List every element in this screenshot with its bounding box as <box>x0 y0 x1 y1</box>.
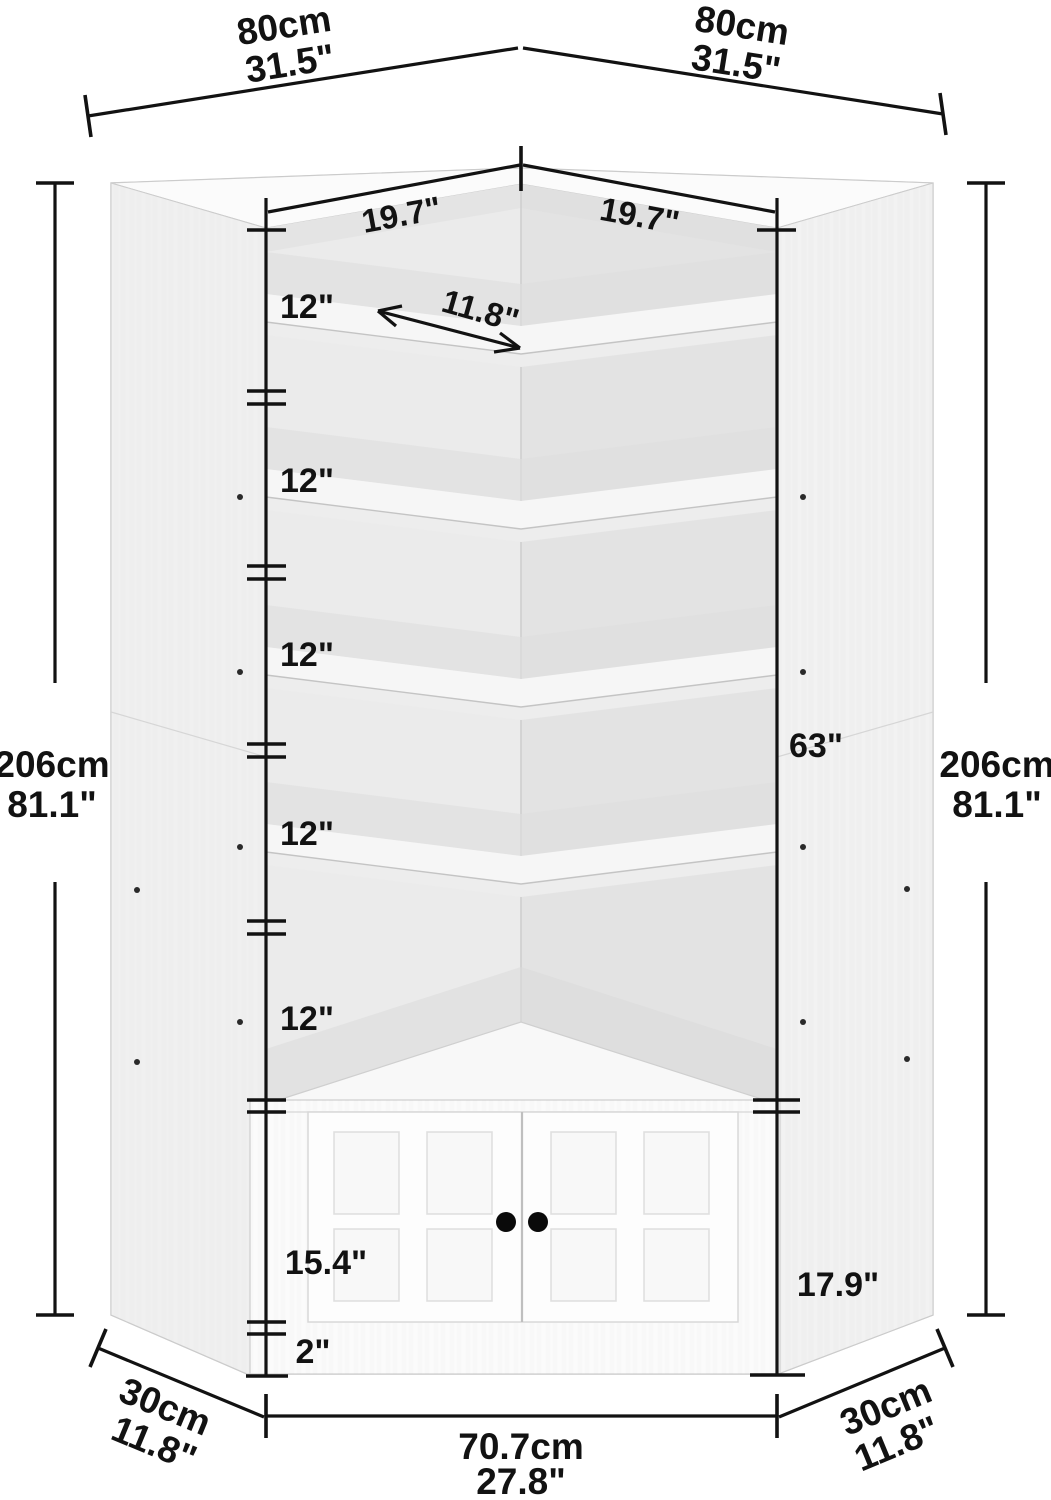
compartment-height-1: 12" <box>280 288 334 326</box>
height-right-cm: 206cm <box>939 744 1051 785</box>
height-left-cm: 206cm <box>0 744 110 785</box>
compartment-height-3: 12" <box>280 636 334 674</box>
cabinet-structure <box>111 168 933 1374</box>
door-panel <box>427 1229 492 1301</box>
compartment-height-4: 12" <box>280 815 334 853</box>
door-panel <box>644 1132 709 1214</box>
corner-cabinet-diagram: 80cm 31.5" 80cm 31.5" 19.7" 19.7" 11.8" … <box>0 0 1051 1500</box>
door-panel <box>644 1229 709 1301</box>
base-height-label: 2" <box>295 1333 330 1371</box>
door-panel <box>334 1132 399 1214</box>
right-door-knob <box>528 1212 548 1232</box>
left-door-knob <box>496 1212 516 1232</box>
compartment-height-5: 12" <box>280 1000 334 1038</box>
door-panel <box>427 1132 492 1214</box>
right-panel-grain <box>777 183 933 1374</box>
cabinet-section-height-label: 17.9" <box>797 1266 879 1304</box>
open-shelf-height-label: 63" <box>789 727 843 765</box>
compartment-height-2: 12" <box>280 462 334 500</box>
height-right-in: 81.1" <box>952 784 1042 825</box>
front-width-in: 27.8" <box>476 1461 566 1500</box>
door-panel <box>551 1229 616 1301</box>
door-panel <box>551 1132 616 1214</box>
door-height-label: 15.4" <box>285 1244 367 1282</box>
left-panel-grain <box>111 183 266 1374</box>
product-dimension-diagram: 80cm 31.5" 80cm 31.5" 19.7" 19.7" 11.8" … <box>0 0 1051 1500</box>
height-left-in: 81.1" <box>7 784 97 825</box>
